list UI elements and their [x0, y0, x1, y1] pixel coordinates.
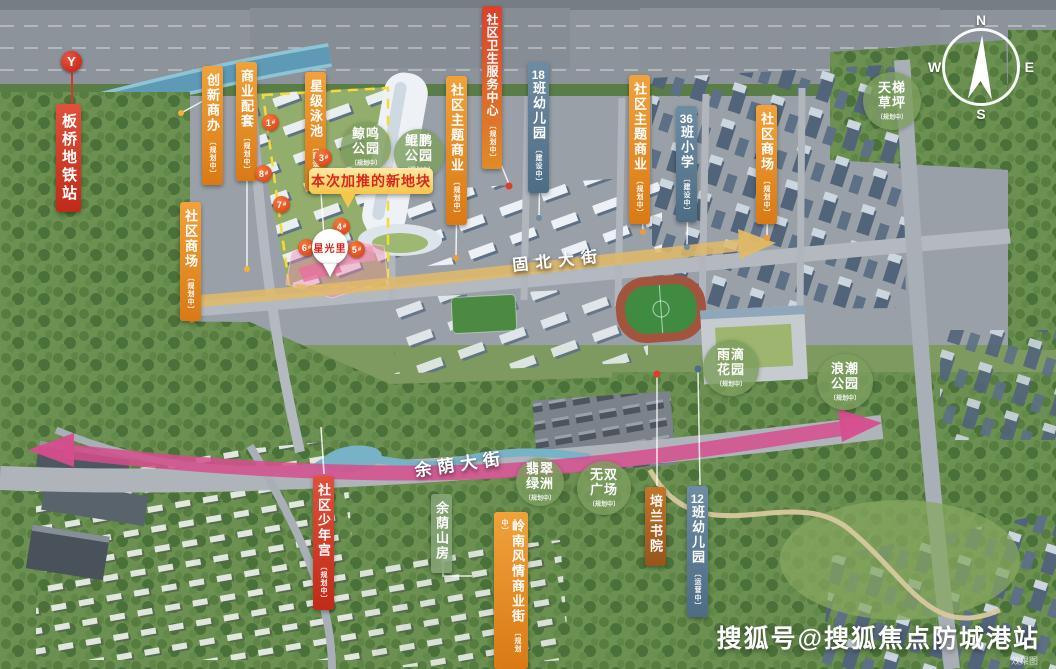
- label-status: 〔规划中〕: [489, 122, 496, 162]
- park-status: 〔规划中〕: [830, 393, 860, 402]
- label-text: 社区主题商业: [632, 82, 647, 172]
- label-text: 班小学: [679, 125, 694, 170]
- badge-number: 5: [352, 245, 357, 255]
- badge-number: 6: [302, 243, 307, 253]
- label-text: 余荫山房: [434, 501, 449, 561]
- label-text: 社区主题商业: [449, 83, 464, 173]
- label-text: 创新商办: [205, 73, 220, 133]
- park-name-line: 雨滴: [717, 348, 745, 363]
- label-number: 12: [690, 493, 704, 505]
- label-community-theme-commerce-1: 社区主题商业〔规划中〕: [446, 76, 467, 225]
- label-community-mall-right: 社区商场〔规划中〕: [756, 105, 777, 224]
- badge-number: 1: [266, 118, 271, 128]
- park-name-line: 天梯: [878, 81, 906, 96]
- park-name-line: 草坪: [878, 96, 906, 111]
- label-kindergarten-12: 12班幼儿园〔运营中〕: [687, 486, 708, 617]
- label-text: 岭南风情商业街: [510, 519, 525, 624]
- label-status: 〔规划中〕: [453, 178, 460, 218]
- label-text: 社区少年宫: [316, 483, 331, 558]
- park-yudi-garden: 雨滴花园〔规划中〕: [703, 340, 759, 396]
- label-text: 社区卫生服务中心: [485, 13, 499, 117]
- badge-number: 8: [259, 169, 264, 179]
- building-badge-8: 8#: [255, 165, 272, 182]
- park-name-line: 广场: [590, 483, 618, 498]
- project-name: 星光里: [314, 240, 347, 255]
- compass-east: E: [1025, 59, 1034, 75]
- building-badge-7: 7#: [273, 196, 290, 213]
- label-community-mall-left: 社区商场〔规划中〕: [180, 202, 201, 321]
- compass-west: W: [928, 59, 941, 75]
- badge-number: 3: [319, 153, 324, 163]
- label-text: 商业配套: [239, 69, 254, 129]
- park-name-line: 浪潮: [831, 362, 859, 377]
- watermark-note: 效果图: [1011, 654, 1038, 667]
- metro-logo-letter: Y: [67, 54, 76, 69]
- label-banqiao-metro-station: 板桥地铁站: [56, 104, 81, 212]
- label-status: 〔规划中〕: [636, 177, 643, 217]
- lawn-tianti: 天梯草坪〔规划中〕: [863, 72, 921, 130]
- watermark: 搜狐号@搜狐焦点防城港站: [717, 619, 1040, 655]
- label-text: 培兰书院: [648, 494, 663, 554]
- compass-north: N: [976, 12, 986, 28]
- banner-text: 本次加推的新地块: [311, 171, 431, 191]
- label-text: 班幼儿园: [690, 505, 705, 565]
- label-status: 〔建设中〕: [535, 146, 542, 186]
- aerial-masterplan-map: Y 板桥地铁站 创新商办〔规划中〕 商业配套〔规划中〕 星级泳池〔建设中〕 社区…: [0, 0, 1056, 669]
- label-status: 〔运营中〕: [694, 570, 701, 610]
- label-kindergarten-18: 18班幼儿园〔建设中〕: [528, 62, 549, 193]
- label-status: 〔规划中〕: [320, 563, 327, 603]
- badge-number: 7: [277, 200, 282, 210]
- label-text: 社区商场: [759, 112, 774, 172]
- park-status: 〔规划中〕: [589, 499, 619, 508]
- label-innovation-office: 创新商办〔规划中〕: [202, 66, 223, 185]
- building-badge-1: 1#: [262, 114, 279, 131]
- metro-logo-icon: Y: [61, 51, 82, 72]
- compass-south: S: [976, 106, 985, 122]
- label-status: 〔规划中〕: [187, 274, 194, 314]
- park-status: 〔规划中〕: [716, 379, 746, 388]
- label-number: 36: [679, 113, 693, 125]
- park-name-line: 翡翠: [526, 462, 554, 477]
- label-youth-palace: 社区少年宫〔规划中〕: [313, 476, 334, 610]
- park-feicui-oasis: 翡翠绿洲〔规划中〕: [516, 458, 564, 506]
- compass: N S W E: [928, 14, 1034, 120]
- label-community-health-center: 社区卫生服务中心〔规划中〕: [482, 6, 502, 169]
- park-name-line: 绿洲: [526, 477, 554, 492]
- park-name-line: 花园: [717, 363, 745, 378]
- label-status: 〔规划中〕: [763, 177, 770, 217]
- label-text: 班幼儿园: [531, 81, 546, 141]
- label-text: 星级泳池: [308, 79, 323, 139]
- building-badge-3: 3#: [315, 149, 332, 166]
- label-status: 〔规划中〕: [209, 138, 216, 178]
- label-lingnan-commercial-street: 岭南风情商业街〔规划中〕: [494, 512, 528, 669]
- label-number: 18: [531, 69, 545, 81]
- park-wushuang-plaza: 无双广场〔规划中〕: [577, 461, 631, 515]
- label-primary-school-36: 36班小学〔建设中〕: [676, 106, 697, 222]
- label-status: 〔规划中〕: [243, 134, 250, 174]
- building-badge-5: 5#: [348, 241, 365, 258]
- marker-pin-icon: [323, 264, 337, 284]
- park-langchao: 浪潮公园〔规划中〕: [817, 354, 873, 410]
- park-name-line: 鲲鹏: [405, 134, 433, 149]
- park-name-line: 公园: [831, 377, 859, 392]
- park-name-line: 无双: [590, 468, 618, 483]
- label-yuyin-garden: 余荫山房: [431, 494, 452, 573]
- label-text: 板桥地铁站: [60, 113, 77, 203]
- project-logo-marker: 星光里: [312, 229, 348, 265]
- park-name-line: 鲸鸣: [352, 127, 380, 142]
- park-status: 〔规划中〕: [877, 112, 907, 121]
- label-status: 〔建设中〕: [683, 175, 690, 215]
- label-peilan-academy: 培兰书院: [645, 487, 666, 566]
- new-plot-banner: 本次加推的新地块: [309, 168, 433, 194]
- label-text: 社区商场: [183, 209, 198, 269]
- label-community-theme-commerce-2: 社区主题商业〔规划中〕: [629, 75, 650, 224]
- park-jingming: 鲸鸣公园〔规划中〕: [341, 122, 391, 172]
- banner-pointer-icon: [340, 193, 356, 216]
- park-status: 〔规划中〕: [525, 493, 555, 502]
- label-commercial-support: 商业配套〔规划中〕: [236, 62, 257, 181]
- park-status: 〔规划中〕: [351, 158, 381, 167]
- park-name-line: 公园: [352, 142, 380, 157]
- park-name-line: 公园: [405, 149, 433, 164]
